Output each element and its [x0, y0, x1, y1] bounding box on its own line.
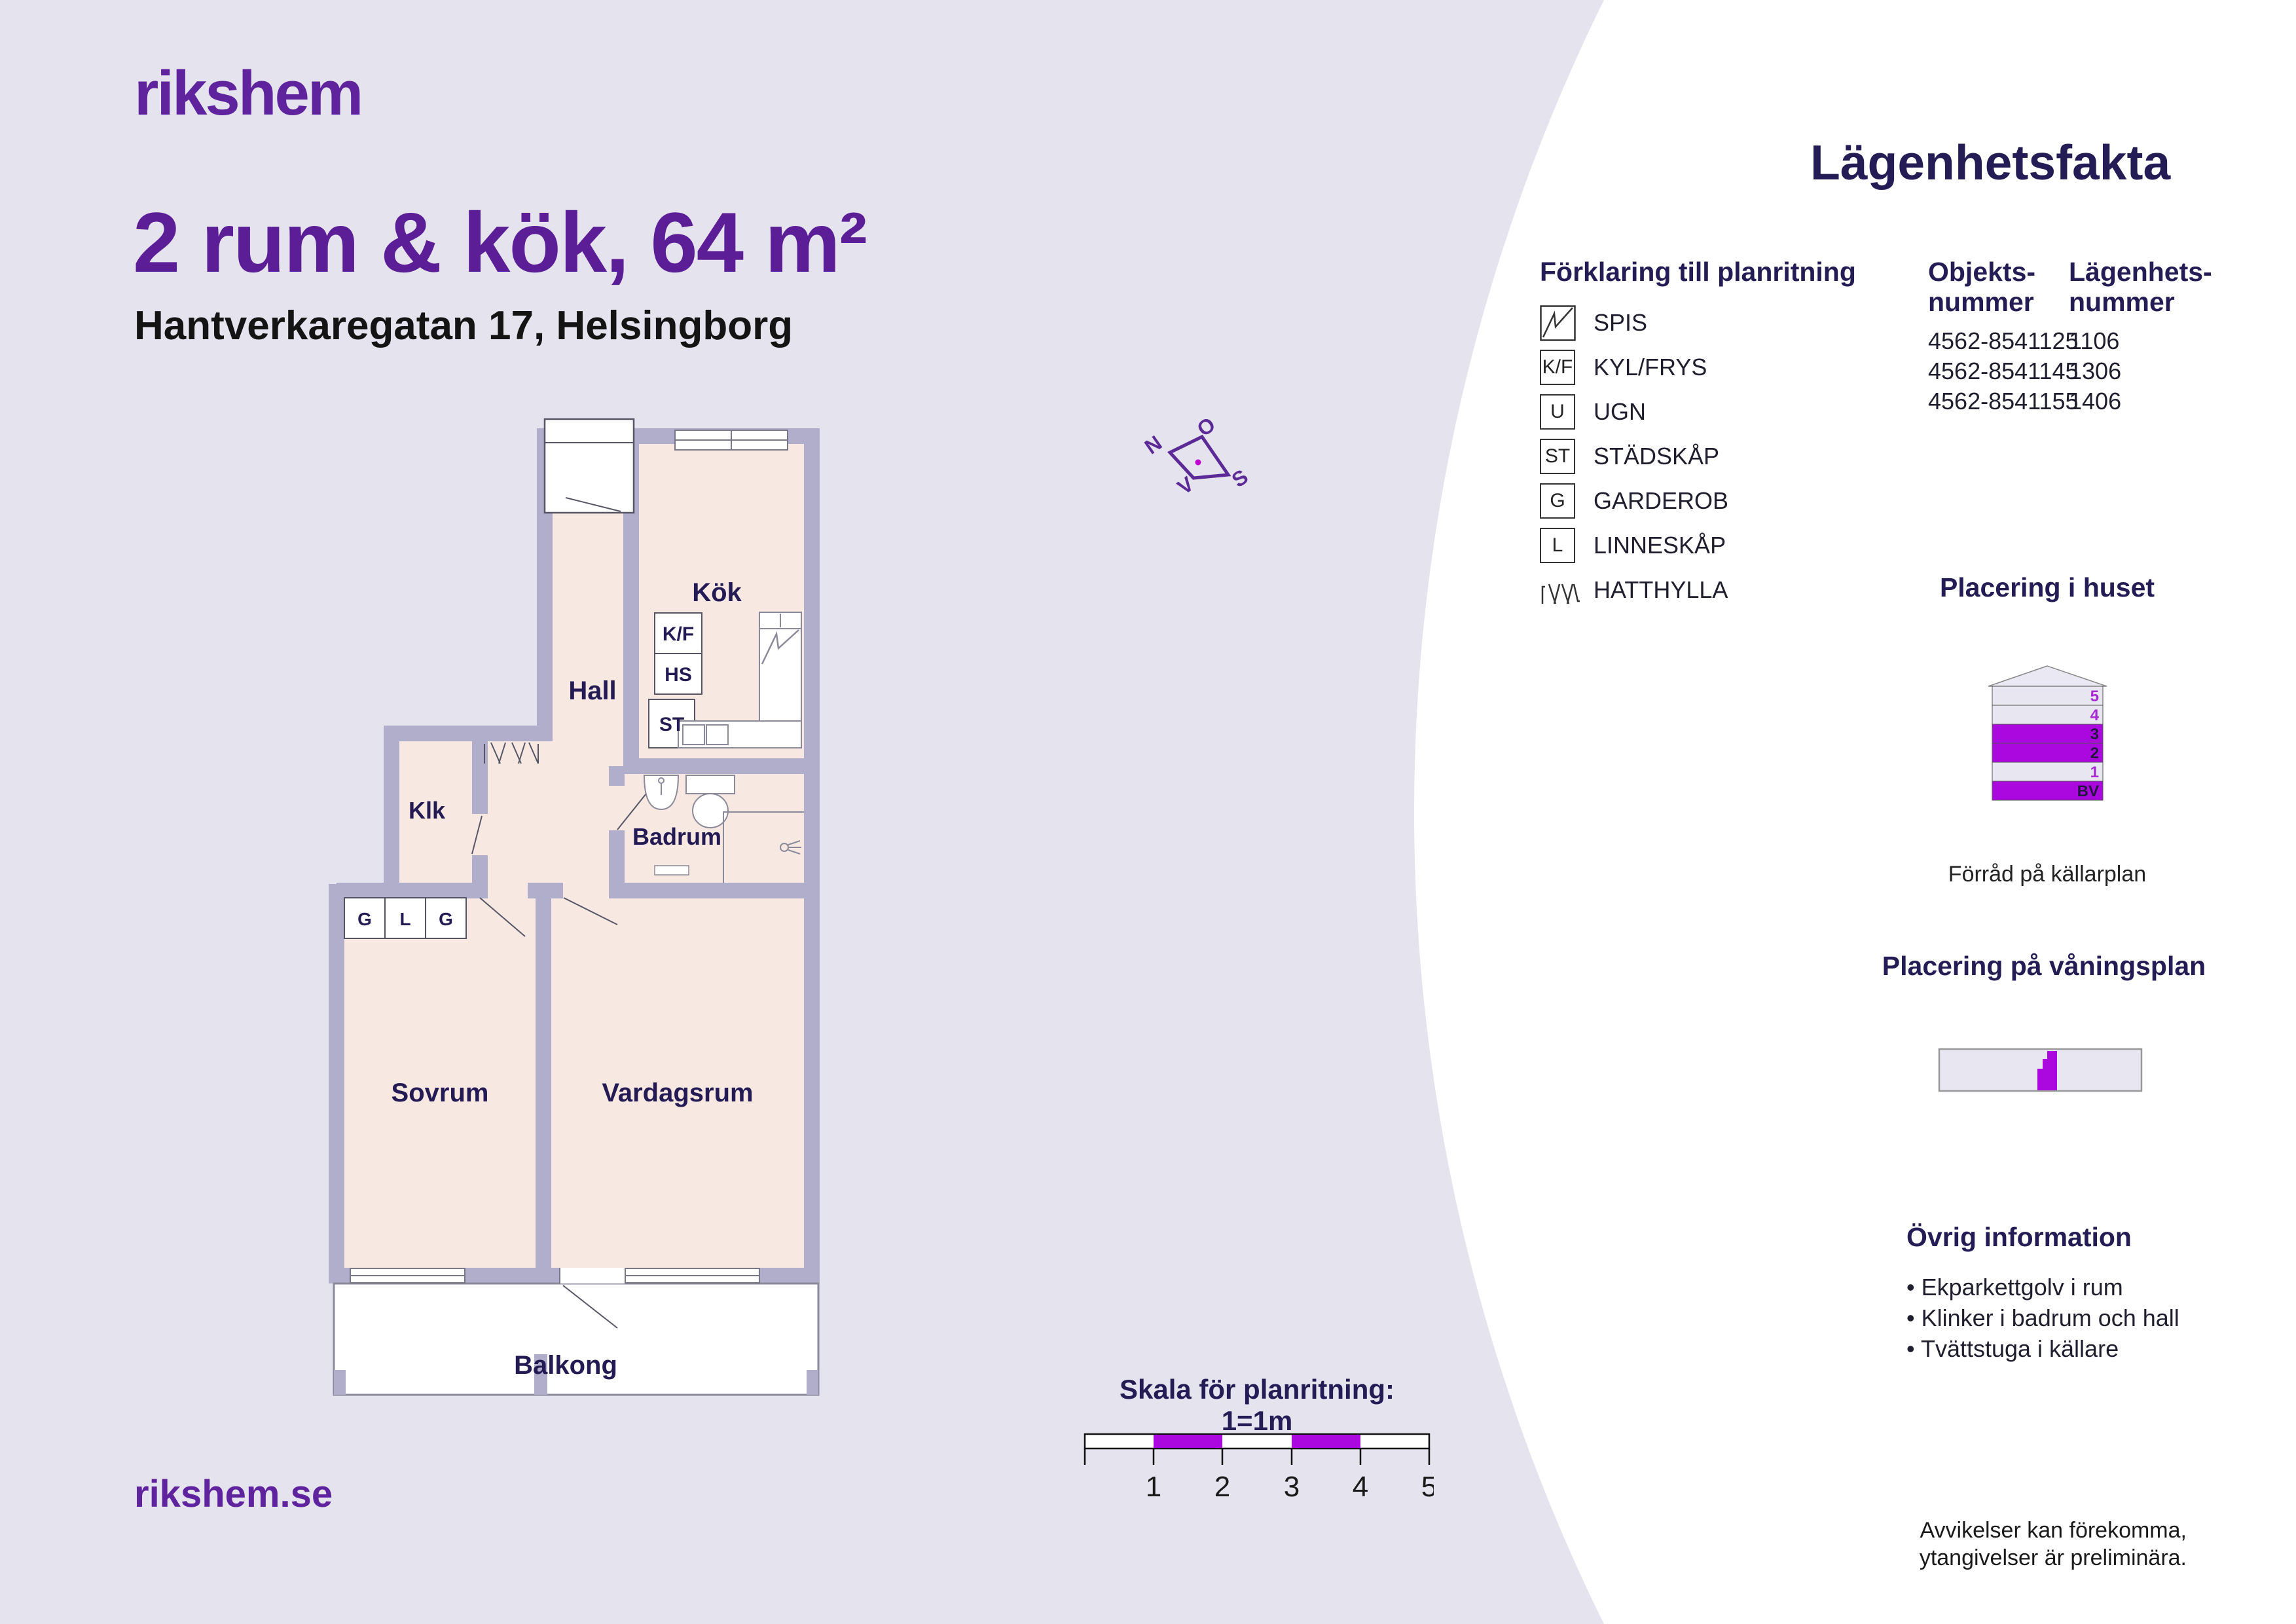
scale-bar: 1 2 3 4 5 — [1080, 1431, 1434, 1509]
stove-legend-icon — [1540, 305, 1576, 341]
facts-heading: Lägenhetsfakta — [1810, 134, 2170, 191]
compass-icon: N O S V — [1142, 419, 1254, 504]
g-legend-icon: G — [1540, 483, 1575, 519]
floor-label-1: 1 — [2090, 764, 2099, 781]
floorplate-placement-icon — [1938, 1048, 2144, 1094]
legend-label: SPIS — [1594, 305, 1647, 341]
room-label-badrum: Badrum — [632, 823, 721, 850]
wardrobe-label-l: L — [399, 909, 410, 929]
legend-label: UGN — [1594, 394, 1646, 430]
floor-label-3: 3 — [2090, 726, 2099, 743]
website-link[interactable]: rikshem.se — [134, 1472, 333, 1516]
apartment-outline — [337, 436, 812, 1276]
other-info-list: • Ekparkettgolv i rum • Klinker i badrum… — [1906, 1272, 2179, 1364]
ugn-legend-icon: U — [1540, 394, 1575, 430]
legend-label: HATTHYLLA — [1594, 572, 1728, 608]
kf-legend-icon: K/F — [1540, 350, 1575, 385]
storage-note: Förråd på källarplan — [1938, 862, 2157, 887]
other-info-item: • Ekparkettgolv i rum — [1906, 1272, 2179, 1302]
scale-tick-2: 2 — [1214, 1471, 1230, 1503]
scale-tick-5: 5 — [1421, 1471, 1434, 1503]
legend-label: KYL/FRYS — [1594, 350, 1707, 385]
scale-title: Skala för planritning: 1=1m — [1080, 1374, 1434, 1437]
compass-s: S — [1228, 464, 1252, 492]
room-label-kok: Kök — [692, 578, 742, 607]
disclaimer: Avvikelser kan förekomma, ytangivelser ä… — [1920, 1517, 2187, 1572]
floor-label-4: 4 — [2090, 707, 2100, 724]
scale-tick-4: 4 — [1353, 1471, 1368, 1503]
cabinet-label-st: ST — [659, 714, 684, 735]
other-info-item: • Tvättstuga i källare — [1906, 1333, 2179, 1364]
wardrobe-label-g2: G — [439, 909, 453, 929]
room-label-sovrum: Sovrum — [392, 1079, 489, 1107]
compass-n: N — [1142, 431, 1166, 459]
bath-mat — [655, 866, 689, 875]
apartment-number-heading: Lägenhets- nummer — [2069, 257, 2212, 317]
legend-label: STÄDSKÅP — [1594, 439, 1719, 474]
cabinet-label-kf: K/F — [663, 623, 694, 645]
compass-v: V — [1173, 471, 1199, 499]
cabinet-label-hs: HS — [665, 664, 692, 686]
facts-panel-background — [1414, 0, 2296, 1624]
room-label-hall: Hall — [568, 676, 616, 705]
floorplan-poster: rikshem 2 rum & kök, 64 m² Hantverkarega… — [0, 0, 2296, 1624]
address-subtitle: Hantverkaregatan 17, Helsingborg — [134, 303, 793, 349]
scale-tick-1: 1 — [1146, 1471, 1161, 1503]
object-number-value: 4562-8541155 — [1928, 388, 2079, 415]
object-number-heading: Objekts- nummer — [1928, 257, 2035, 317]
legend-label: GARDEROB — [1594, 483, 1728, 519]
page-title: 2 rum & kök, 64 m² — [133, 193, 866, 291]
floor-label-bv: BV — [2077, 783, 2099, 800]
apartment-number-value: 1406 — [2069, 388, 2121, 415]
rikshem-logo: rikshem — [134, 58, 361, 130]
entry-door — [545, 419, 634, 513]
other-info-heading: Övrig information — [1906, 1222, 2132, 1253]
building-placement-icon: 5 4 3 2 1 BV — [1987, 663, 2108, 803]
room-label-balkong: Balkong — [514, 1351, 617, 1380]
floorplate-placement-heading: Placering på våningsplan — [1880, 951, 2208, 982]
legend-heading: Förklaring till planritning — [1540, 257, 1856, 287]
apartment-number-value: 1306 — [2069, 358, 2121, 385]
l-legend-icon: L — [1540, 528, 1575, 563]
other-info-item: • Klinker i badrum och hall — [1906, 1302, 2179, 1333]
floor-plan: Hall Kök Klk Badrum Sovrum Vardagsrum Ba… — [288, 393, 917, 1414]
scale-tick-3: 3 — [1284, 1471, 1300, 1503]
apartment-number-value: 1106 — [2069, 327, 2119, 355]
room-label-klk: Klk — [409, 797, 446, 824]
floor-label-5: 5 — [2090, 688, 2099, 705]
wardrobe-label-g1: G — [357, 909, 372, 929]
hatshelf-legend-icon — [1540, 572, 1580, 608]
legend-label: LINNESKÅP — [1594, 528, 1726, 563]
object-number-value: 4562-8541145 — [1928, 358, 2079, 385]
floor-label-2: 2 — [2090, 745, 2099, 762]
st-legend-icon: ST — [1540, 439, 1575, 474]
room-label-vardagsrum: Vardagsrum — [602, 1079, 753, 1107]
building-placement-heading: Placering i huset — [1884, 572, 2211, 603]
object-number-value: 4562-8541125 — [1928, 327, 2079, 355]
